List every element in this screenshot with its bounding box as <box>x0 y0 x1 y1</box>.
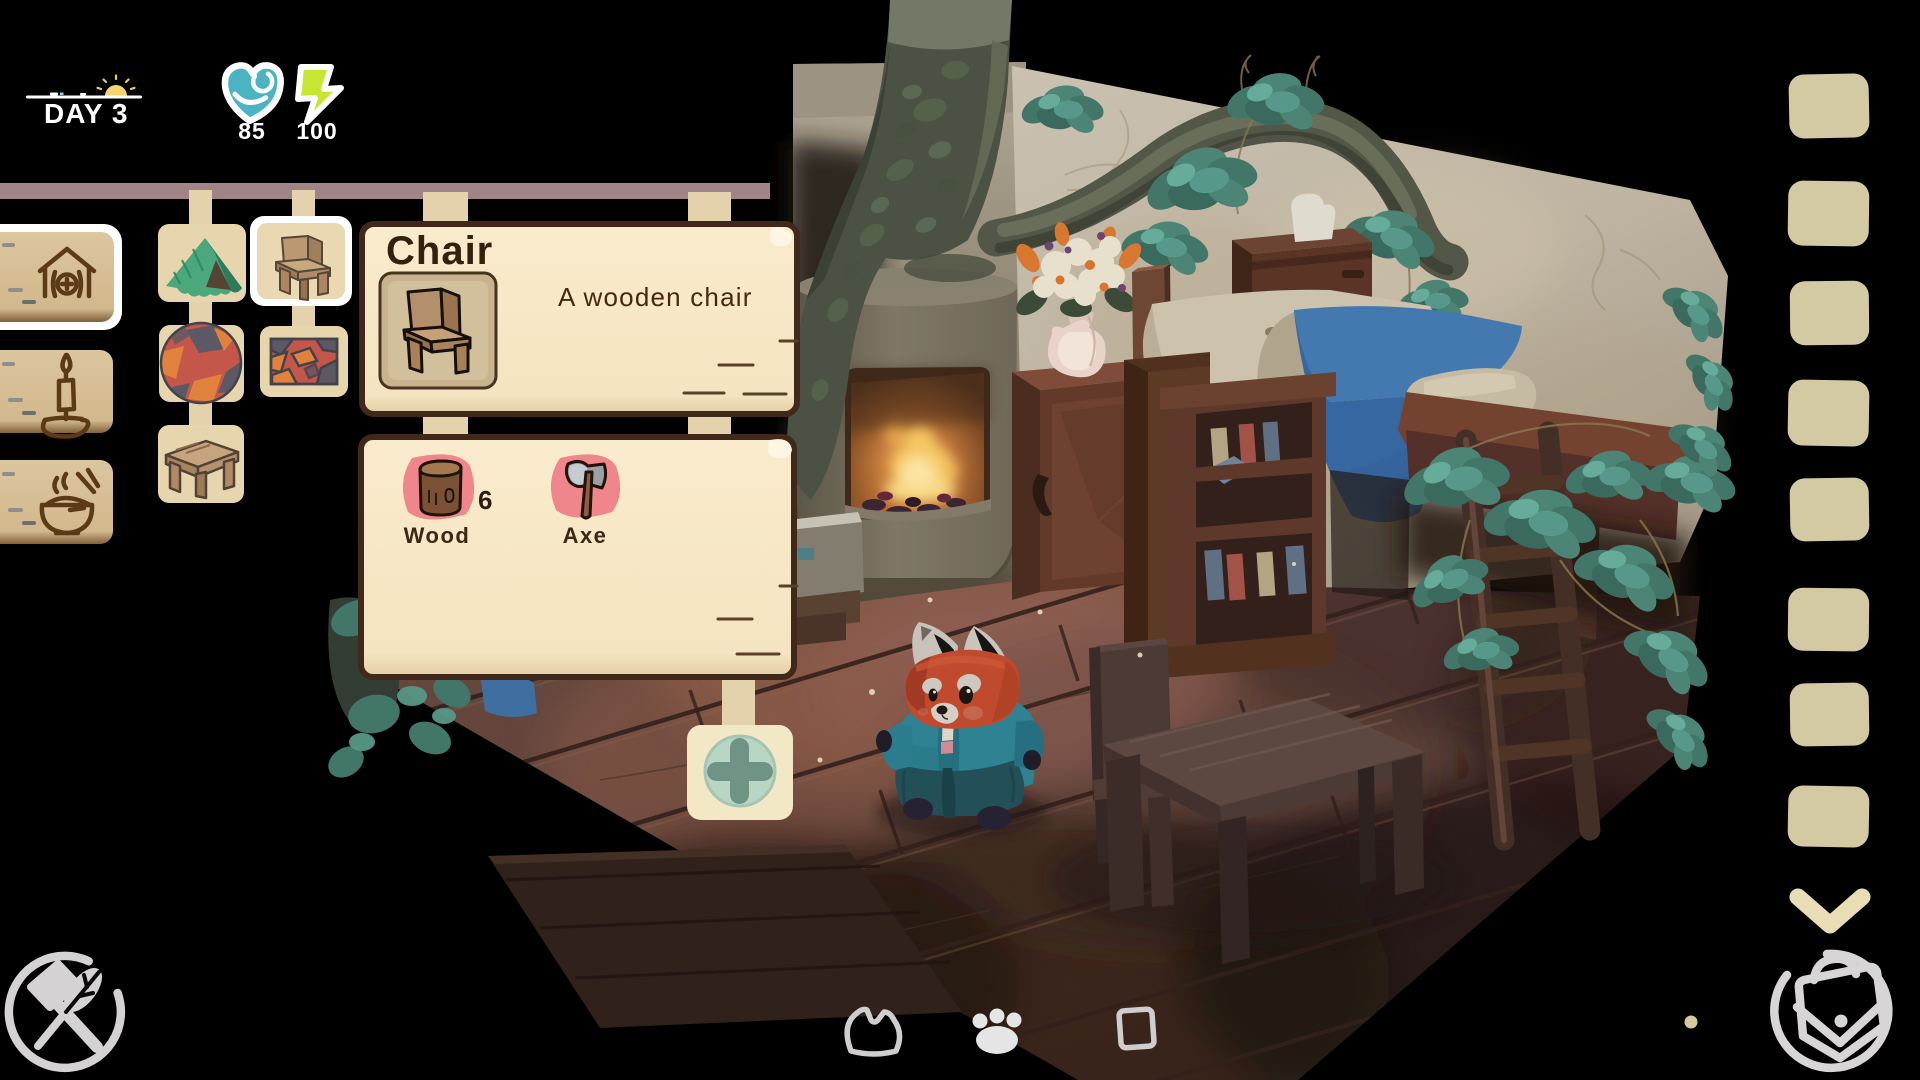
svg-text:85: 85 <box>238 118 266 144</box>
svg-text:Wood: Wood <box>404 523 471 548</box>
svg-text:6: 6 <box>478 485 492 515</box>
svg-text:A wooden chair: A wooden chair <box>558 282 753 312</box>
svg-text:Chair: Chair <box>386 229 493 273</box>
svg-text:Axe: Axe <box>563 523 608 548</box>
svg-text:DAY 3: DAY 3 <box>44 98 128 129</box>
svg-text:100: 100 <box>296 118 337 144</box>
